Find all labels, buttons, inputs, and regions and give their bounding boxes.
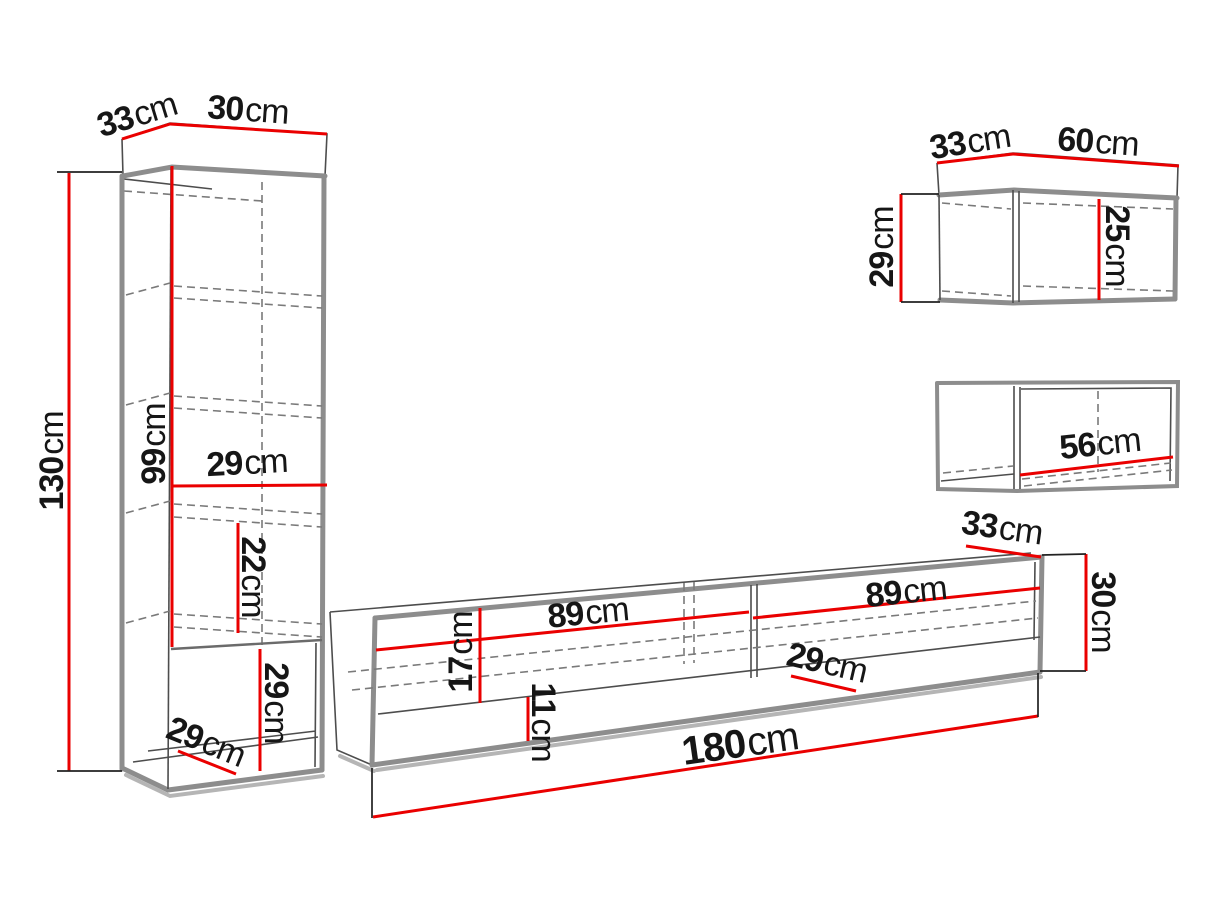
dim-label-wall-top-width: 60cm: [1056, 122, 1139, 162]
dim-unit: cm: [1094, 123, 1140, 164]
dim-unit: cm: [524, 718, 562, 761]
dim-unit: cm: [442, 611, 480, 654]
dim-unit: cm: [863, 206, 901, 249]
dim-value: 25: [1098, 205, 1136, 241]
dim-unit: cm: [1098, 243, 1136, 286]
dim-label-tv-opening-height: 17cm: [444, 611, 478, 692]
dim-value: 29: [257, 662, 295, 698]
dim-value: 33: [927, 124, 968, 167]
dim-value: 30: [206, 88, 244, 128]
dim-unit: cm: [244, 91, 290, 132]
dim-value: 22: [234, 536, 272, 572]
dim-value: 180: [679, 721, 748, 773]
dim-value: 33: [959, 504, 1000, 547]
dim-unit: cm: [1095, 421, 1142, 463]
dim-value: 29: [863, 252, 901, 288]
dim-value: 89: [546, 595, 585, 636]
dim-unit: cm: [257, 700, 295, 743]
diagram-linework: [0, 0, 1214, 911]
dim-label-tall-upper-section: 99cm: [137, 403, 171, 484]
dim-label-tv-height: 30cm: [1086, 571, 1120, 652]
furniture-dimensions-diagram: 33cm 30cm 130cm 99cm 29cm 22cm 29cm 29cm…: [0, 0, 1214, 911]
dim-unit: cm: [1084, 609, 1122, 652]
dim-unit: cm: [997, 509, 1045, 553]
dim-unit: cm: [234, 574, 272, 617]
dim-label-tall-niche-height: 29cm: [259, 662, 293, 743]
dim-label-tv-base-height: 11cm: [526, 682, 560, 761]
dim-label-wall-bottom-opening-width: 56cm: [1058, 423, 1142, 465]
dim-label-tall-width: 30cm: [206, 90, 289, 130]
dim-value: 99: [135, 449, 173, 485]
dim-value: 29: [783, 635, 826, 680]
dim-value: 56: [1058, 426, 1098, 468]
dim-value: 130: [33, 457, 71, 511]
dim-value: 29: [205, 444, 243, 484]
dim-value: 30: [1084, 571, 1122, 607]
dim-label-wall-top-opening-height: 25cm: [1100, 205, 1134, 286]
dim-value: 17: [442, 657, 480, 693]
dim-unit: cm: [744, 714, 801, 765]
dim-value: 89: [864, 574, 904, 616]
dim-unit: cm: [583, 590, 630, 632]
dim-label-tall-shelf-spacing: 22cm: [236, 536, 270, 617]
dim-label-tv-right-opening: 89cm: [864, 571, 948, 613]
dim-label-tall-interior-width: 29cm: [206, 444, 289, 482]
dim-unit: cm: [964, 117, 1013, 161]
dim-value: 11: [524, 682, 562, 716]
dim-unit: cm: [33, 411, 71, 454]
dim-unit: cm: [901, 569, 948, 611]
dim-unit: cm: [135, 403, 173, 446]
wall-cabinet-top-drawing: [901, 153, 1179, 303]
dim-label-wall-top-height: 29cm: [865, 206, 899, 287]
dim-value: 60: [1056, 120, 1094, 160]
dim-label-tall-height: 130cm: [35, 411, 69, 510]
dim-label-tv-left-opening: 89cm: [546, 592, 630, 634]
dim-unit: cm: [243, 442, 288, 482]
